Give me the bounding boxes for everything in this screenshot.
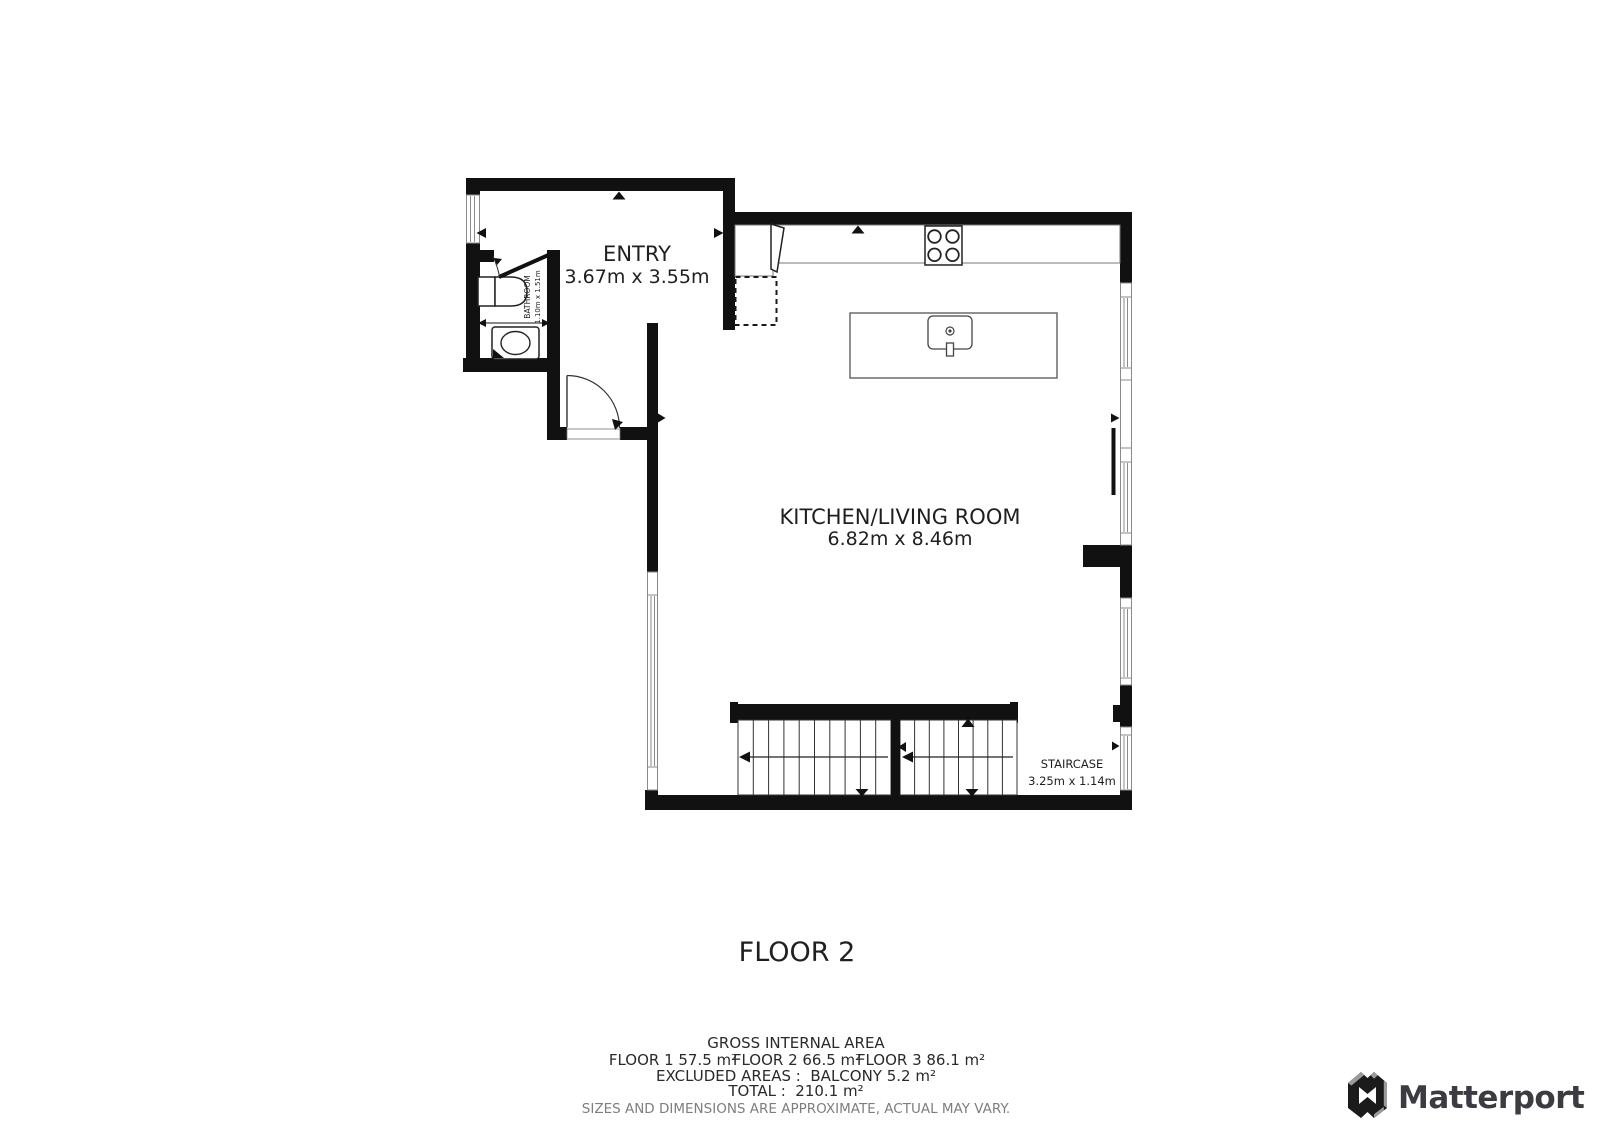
right-wall-opening: [1121, 380, 1132, 448]
entry-window: [467, 195, 480, 243]
entry-dims: 3.67m x 3.55m: [565, 266, 710, 288]
bathroom-door: [493, 253, 554, 278]
staircase-top-wall: [730, 704, 1018, 720]
toilet-icon: [478, 277, 527, 306]
kitchen-fixtures: [735, 224, 1120, 495]
matterport-logo: Matterport: [1348, 1072, 1585, 1118]
walls: [463, 178, 1132, 810]
stove-icon: [925, 226, 962, 265]
entry-door: [567, 376, 623, 440]
bathroom-bottom-wall: [463, 358, 560, 372]
staircase-label: STAIRCASE: [1041, 757, 1104, 771]
kitchen-living-label: KITCHEN/LIVING ROOM: [780, 505, 1021, 529]
matterport-logo-icon: [1348, 1072, 1387, 1118]
kitchen-top-wall: [735, 212, 1132, 225]
gia-total: TOTAL : 210.1 m²: [727, 1082, 863, 1100]
bathroom-label: BATHROOM: [523, 275, 532, 318]
staircase: [738, 719, 1017, 797]
floorplan-page: ENTRY 3.67m x 3.55m KITCHEN/LIVING ROOM …: [0, 0, 1600, 1131]
kitchen-living-dims: 6.82m x 8.46m: [828, 528, 973, 550]
matterport-wordmark: Matterport: [1398, 1080, 1585, 1116]
bathroom-top-wall: [466, 250, 494, 262]
kitchen-island: [850, 313, 1057, 378]
appliance-dashed-outline: [736, 277, 777, 325]
floor-title: FLOOR 2: [739, 937, 856, 968]
bathroom-dims: 1.10m x 1.51m: [534, 270, 542, 324]
entry-kitchen-divider-wall: [723, 178, 735, 330]
staircase-dims: 3.25m x 1.14m: [1028, 774, 1116, 788]
entry-label: ENTRY: [603, 242, 671, 266]
entry-top-wall: [466, 178, 735, 191]
right-wall-tab: [1083, 545, 1132, 567]
floorplan-drawing: ENTRY 3.67m x 3.55m KITCHEN/LIVING ROOM …: [0, 0, 1600, 1131]
living-left-wall: [647, 323, 658, 572]
kitchen-cabinet: [735, 225, 773, 276]
wall-mounted-panel: [1112, 428, 1116, 495]
bathroom-fixtures: [478, 253, 554, 360]
right-wall: [1120, 212, 1132, 283]
bottom-wall: [645, 795, 1132, 810]
gia-disclaimer: SIZES AND DIMENSIONS ARE APPROXIMATE, AC…: [582, 1101, 1010, 1117]
living-left-window: [648, 572, 658, 790]
gross-internal-area-block: GROSS INTERNAL AREA FLOOR 1 57.5 m² FLOO…: [582, 1034, 1010, 1117]
bathroom-sink-icon: [492, 327, 539, 359]
stair-divider-wall: [891, 720, 900, 795]
bathroom-right-wall: [547, 250, 560, 440]
gia-heading: GROSS INTERNAL AREA: [707, 1034, 885, 1052]
